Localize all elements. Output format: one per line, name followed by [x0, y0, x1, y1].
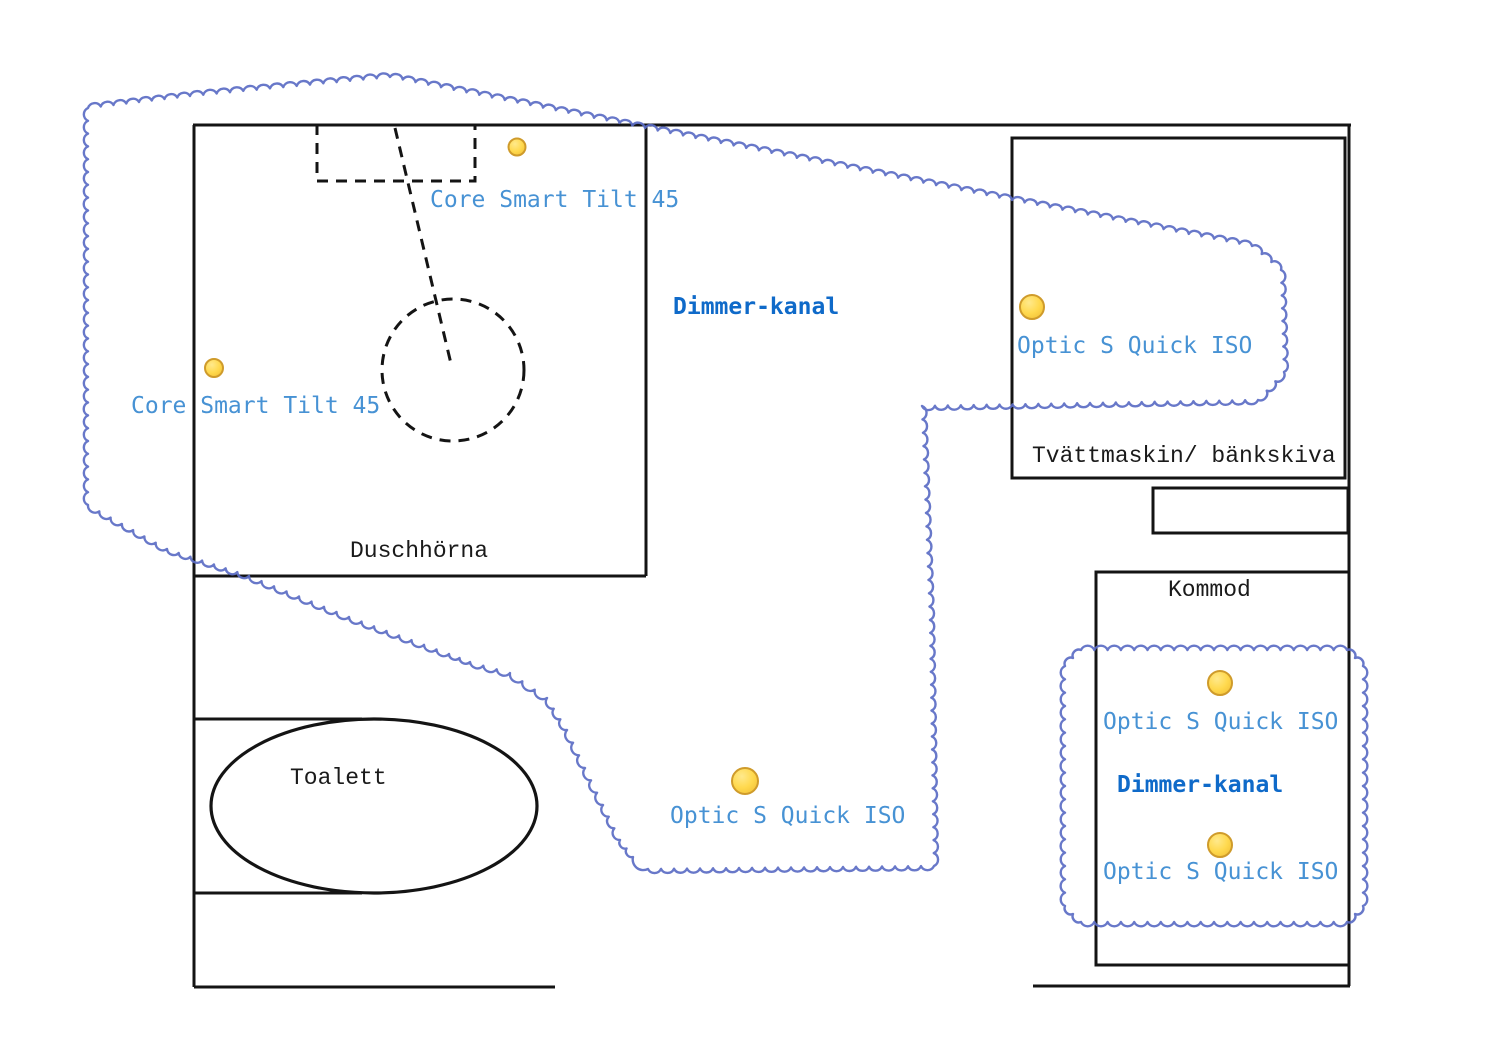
utility-box: [1153, 488, 1348, 533]
light-fixture-dot: [732, 768, 758, 794]
label-dimmer-kanal-main: Dimmer-kanal: [673, 295, 839, 319]
light-fixture-dot: [1020, 295, 1044, 319]
kommod-box: [1096, 572, 1349, 965]
floorplan-svg: [0, 0, 1511, 1063]
tvattmaskin-box: [1012, 138, 1345, 478]
label-dimmer-kanal-kommod: Dimmer-kanal: [1117, 773, 1283, 797]
floor-plan: Core Smart Tilt 45 Core Smart Tilt 45 Di…: [0, 0, 1511, 1063]
label-optic-s-quick-iso-floor: Optic S Quick ISO: [670, 804, 905, 828]
label-optic-s-quick-iso-tvattmaskin: Optic S Quick ISO: [1017, 334, 1252, 358]
light-fixture-dot: [205, 359, 223, 377]
label-optic-s-quick-iso-kommod-bottom: Optic S Quick ISO: [1103, 860, 1338, 884]
shower-dashed-line: [395, 128, 452, 368]
label-kommod: Kommod: [1168, 578, 1251, 602]
light-fixture-dot: [1208, 671, 1232, 695]
label-duschhorna: Duschhörna: [350, 539, 488, 563]
light-fixture-dot: [1208, 833, 1232, 857]
label-tvattmaskin-bankskiva: Tvättmaskin/ bänkskiva: [1032, 444, 1336, 468]
light-fixture-dot: [509, 139, 526, 156]
label-core-smart-tilt-45-shower-left: Core Smart Tilt 45: [131, 394, 380, 418]
toilet-ellipse: [211, 719, 537, 893]
label-optic-s-quick-iso-kommod-top: Optic S Quick ISO: [1103, 710, 1338, 734]
label-toalett: Toalett: [290, 766, 387, 790]
shower-dashed-circle: [382, 299, 524, 441]
label-core-smart-tilt-45-shower-top: Core Smart Tilt 45: [430, 188, 679, 212]
